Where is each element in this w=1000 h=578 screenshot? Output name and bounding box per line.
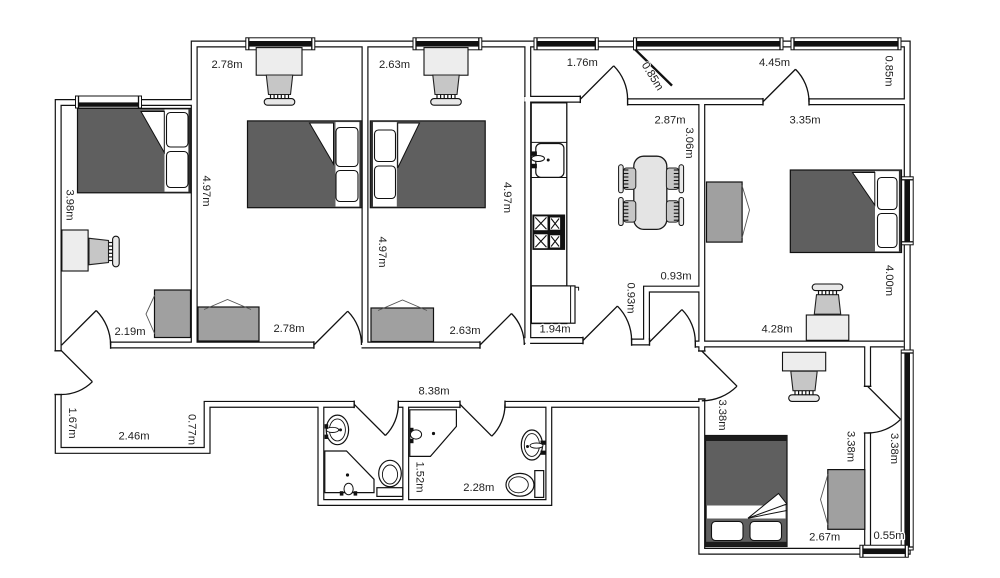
svg-text:2.78m: 2.78m: [273, 323, 304, 335]
svg-text:2.28m: 2.28m: [463, 482, 494, 494]
svg-text:2.63m: 2.63m: [449, 325, 480, 337]
svg-text:3.98m: 3.98m: [64, 189, 76, 220]
svg-text:0.55m: 0.55m: [873, 530, 904, 542]
svg-text:3.38m: 3.38m: [716, 399, 728, 430]
svg-text:1.94m: 1.94m: [539, 324, 570, 336]
svg-text:4.97m: 4.97m: [376, 236, 388, 267]
svg-text:0.85m: 0.85m: [882, 55, 894, 86]
svg-text:0.77m: 0.77m: [186, 414, 198, 445]
svg-text:3.38m: 3.38m: [845, 431, 857, 462]
svg-text:2.46m: 2.46m: [118, 431, 149, 443]
svg-text:2.63m: 2.63m: [379, 59, 410, 71]
svg-text:3.38m: 3.38m: [888, 433, 900, 464]
svg-text:2.87m: 2.87m: [654, 115, 685, 127]
svg-text:1.52m: 1.52m: [414, 461, 426, 492]
svg-text:4.00m: 4.00m: [883, 265, 895, 296]
svg-text:4.97m: 4.97m: [200, 175, 212, 206]
svg-text:2.78m: 2.78m: [211, 59, 242, 71]
svg-text:4.28m: 4.28m: [761, 324, 792, 336]
svg-text:4.97m: 4.97m: [501, 182, 513, 213]
svg-text:3.06m: 3.06m: [683, 127, 695, 158]
svg-text:3.35m: 3.35m: [789, 115, 820, 127]
svg-text:4.45m: 4.45m: [759, 57, 790, 69]
svg-text:1.76m: 1.76m: [567, 57, 598, 69]
svg-text:8.38m: 8.38m: [418, 386, 449, 398]
svg-text:2.19m: 2.19m: [114, 326, 145, 338]
svg-text:0.93m: 0.93m: [625, 282, 637, 313]
svg-text:0.93m: 0.93m: [660, 271, 691, 283]
svg-text:2.67m: 2.67m: [809, 532, 840, 544]
svg-text:1.67m: 1.67m: [66, 407, 78, 438]
